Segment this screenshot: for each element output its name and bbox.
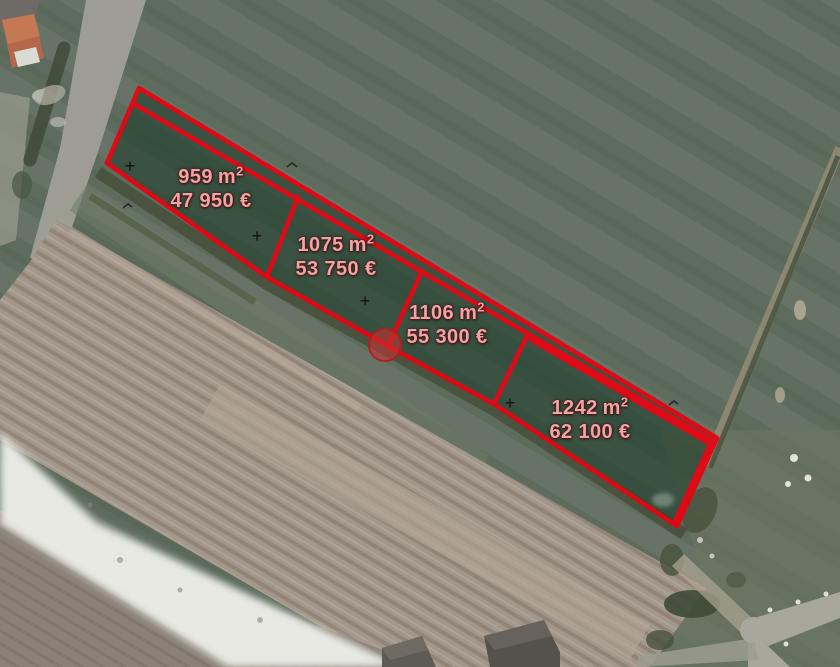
bare-patch — [794, 300, 806, 320]
path-stone — [697, 537, 703, 543]
curb-stone — [796, 600, 801, 605]
bare-patch — [775, 387, 785, 403]
speckle — [178, 588, 183, 593]
vertex-circle-marker[interactable] — [369, 329, 401, 361]
speckle — [88, 503, 93, 508]
curb-stone — [824, 592, 829, 597]
curb-stone — [784, 642, 789, 647]
white-spot — [805, 475, 812, 482]
path-stone — [710, 554, 715, 559]
road-junction — [740, 617, 766, 643]
curb-stone — [768, 608, 773, 613]
road-patch — [50, 117, 66, 127]
white-spot — [790, 454, 798, 462]
white-spot — [785, 481, 791, 487]
aerial-map — [0, 0, 840, 667]
speckle — [257, 617, 263, 623]
speckle — [117, 557, 123, 563]
scrub-blob — [726, 572, 746, 588]
map-canvas[interactable]: + + + + 959m2 47 950 € 1075m2 53 750 € 1… — [0, 0, 840, 667]
tree-blob — [12, 171, 32, 199]
scrub-blob — [646, 630, 674, 650]
